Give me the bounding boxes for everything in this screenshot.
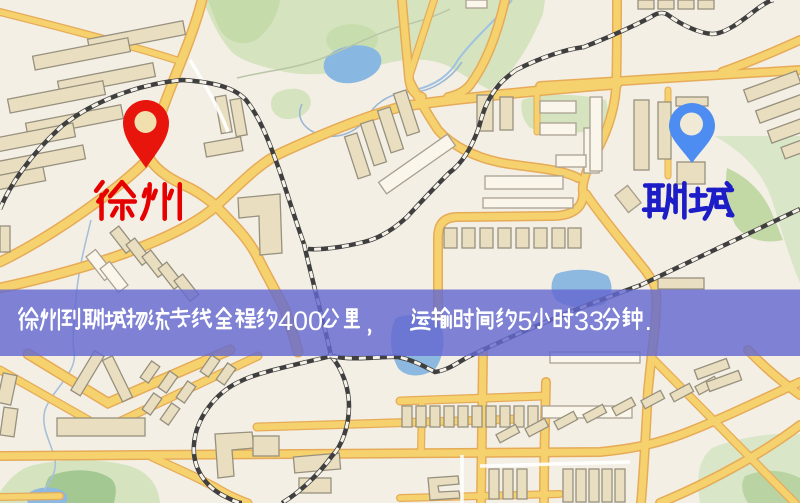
svg-text:5: 5 [518,306,533,336]
svg-text:400: 400 [278,306,323,336]
svg-text:33: 33 [574,306,604,336]
svg-text:.: . [645,306,653,336]
